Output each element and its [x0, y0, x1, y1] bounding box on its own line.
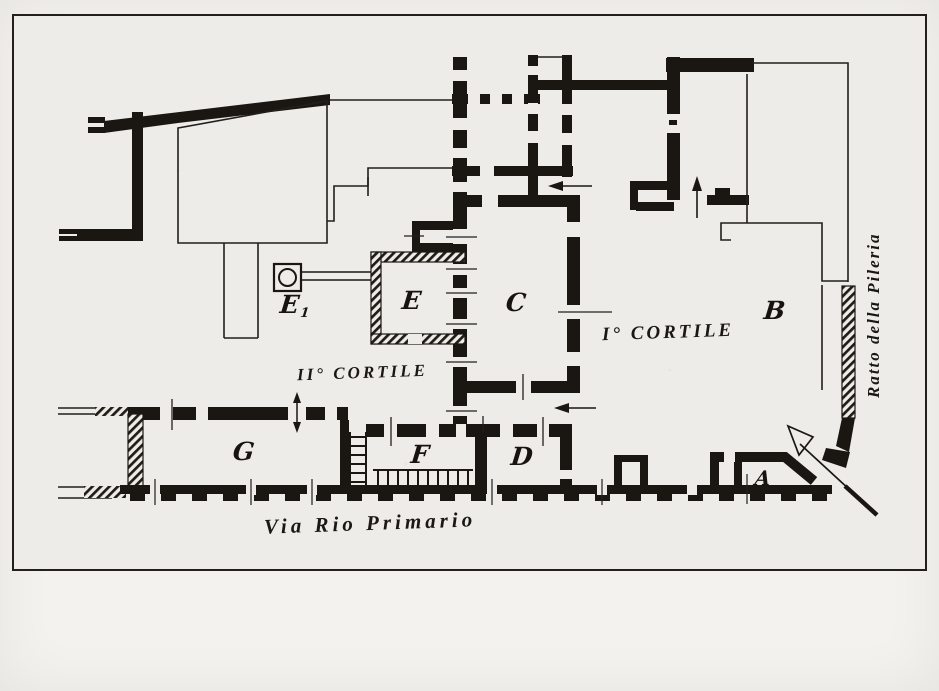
room-label-e1-main: E	[279, 290, 301, 319]
entrance-arrow-b	[692, 176, 702, 218]
north-central-walls	[452, 55, 749, 425]
room-c-walls	[446, 195, 612, 416]
room-label-e1: E1	[278, 290, 311, 321]
room-label-a: A	[754, 466, 772, 490]
south-wing-walls	[58, 399, 572, 490]
courtyard-first-label: I° CORTILE	[602, 320, 735, 347]
room-label-e1-sub: 1	[299, 306, 310, 321]
street-porch	[614, 455, 648, 488]
room-label-b: B	[762, 296, 786, 325]
floor-plan-drawing	[0, 0, 939, 691]
well-channel	[301, 272, 371, 280]
scanned-floor-plan-photo: B C E E1 G F D A I° CORTILE II° CORTILE …	[0, 0, 939, 691]
pileria-street-wall	[822, 286, 855, 468]
colonnade	[373, 470, 473, 486]
well-symbol	[274, 264, 371, 291]
room-label-f: F	[409, 440, 430, 469]
room-label-e: E	[400, 286, 422, 315]
room-label-g: G	[231, 437, 255, 466]
north-west-building-walls	[59, 94, 330, 241]
entrance-arrow-upper	[548, 181, 592, 191]
room-e-walls	[371, 221, 467, 344]
stairs	[350, 432, 366, 486]
entrance-arrow-lower	[554, 403, 596, 413]
room-label-c: C	[504, 288, 527, 317]
room-label-d: D	[509, 442, 534, 471]
street-label-ratto-della-pileria: Ratto della Pileria	[864, 188, 884, 398]
